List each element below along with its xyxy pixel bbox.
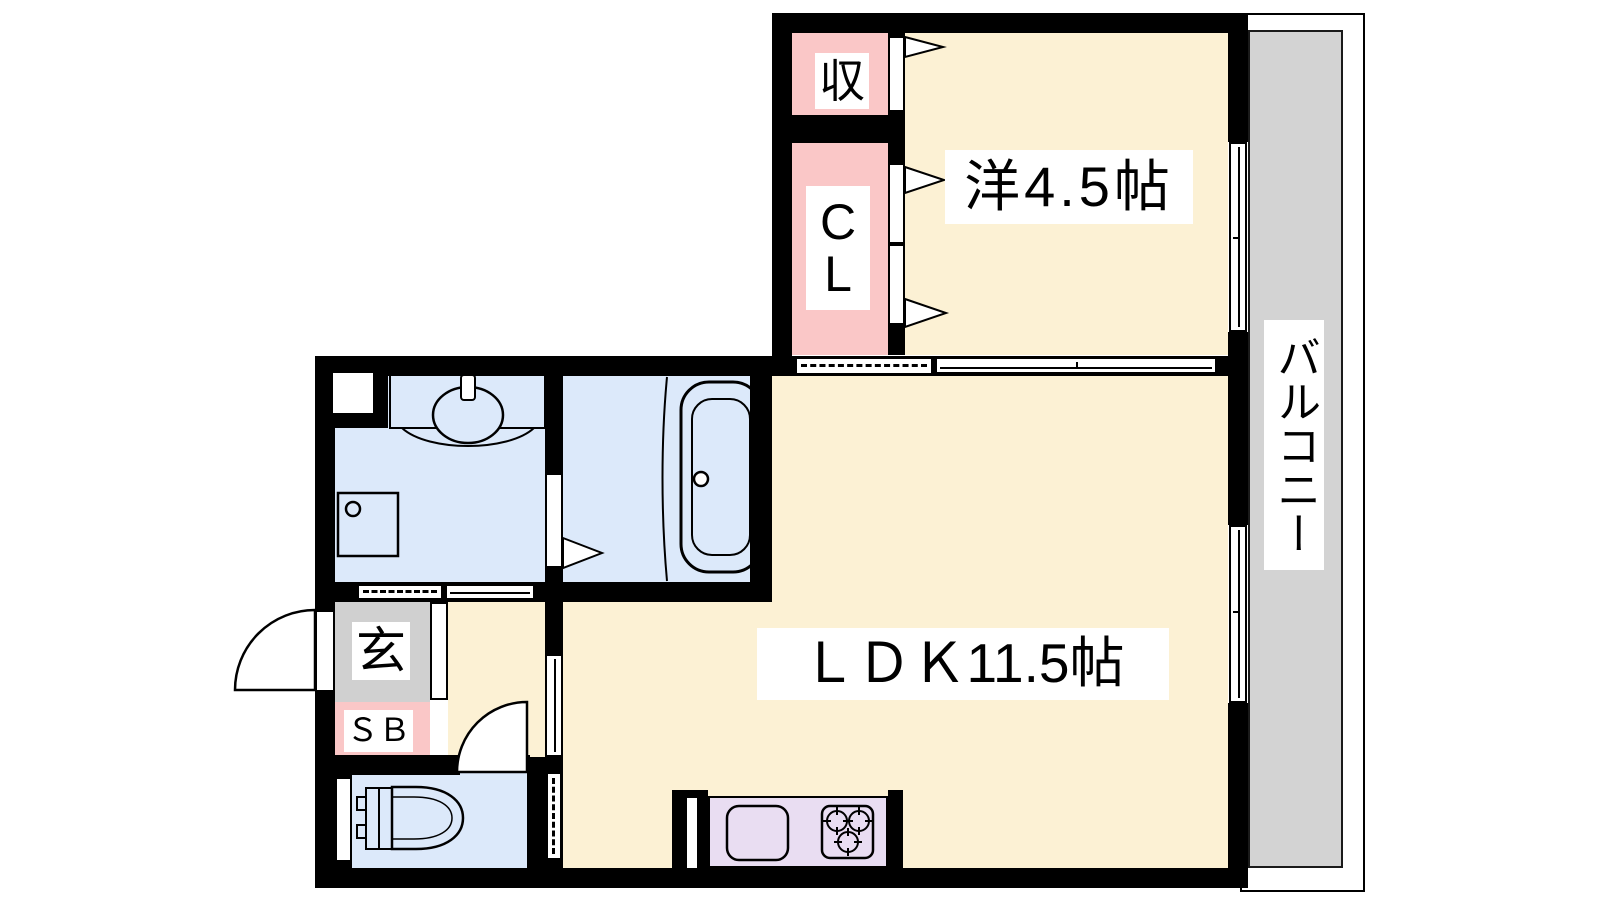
toilet-bowl-inner <box>392 797 452 839</box>
closet-door-arrow-lower <box>905 299 946 327</box>
toilet-tab-lower <box>357 825 366 838</box>
front-door-swing-arc <box>235 610 315 690</box>
western-room-label: 洋4.5帖 <box>945 150 1193 224</box>
washing-machine-pan <box>338 493 398 556</box>
bathtub-deck-edge <box>663 377 668 581</box>
balcony-label-text: バルコニー <box>1271 335 1317 555</box>
toilet-tab-upper <box>357 797 366 810</box>
entrance-label-text: 玄 <box>356 625 406 678</box>
western-room-label-text: 洋4.5帖 <box>964 158 1174 217</box>
closet-door-arrow-upper <box>905 167 944 193</box>
kitchen-sink <box>727 806 788 860</box>
fixtures-layer <box>0 0 1600 900</box>
closet-label: C L <box>806 186 870 310</box>
storage-label: 収 <box>815 53 869 109</box>
stove-burners <box>823 807 873 856</box>
ldk-label-text: ＬＤＫ11.5帖 <box>802 635 1125 693</box>
storage-door-arrow <box>905 37 943 57</box>
closet-label-line2: L <box>824 248 852 301</box>
floor-plan: 収 C L 洋4.5帖 ＬＤＫ11.5帖 バルコニー 玄 ＳＢ <box>0 0 1600 900</box>
washing-machine-drain <box>346 502 360 516</box>
storage-label-text: 収 <box>819 57 865 105</box>
entrance-label: 玄 <box>352 622 410 680</box>
shoebox-label-text: ＳＢ <box>346 714 410 748</box>
shoebox-label: ＳＢ <box>344 710 413 752</box>
bathroom-door-arrow <box>563 538 602 568</box>
toilet-door-swing-arc <box>457 702 527 772</box>
closet-label-line1: C <box>820 196 856 249</box>
ldk-label: ＬＤＫ11.5帖 <box>757 628 1169 700</box>
balcony-label: バルコニー <box>1264 320 1324 570</box>
bathtub-drain <box>694 472 708 486</box>
washbasin-faucet <box>461 375 475 400</box>
